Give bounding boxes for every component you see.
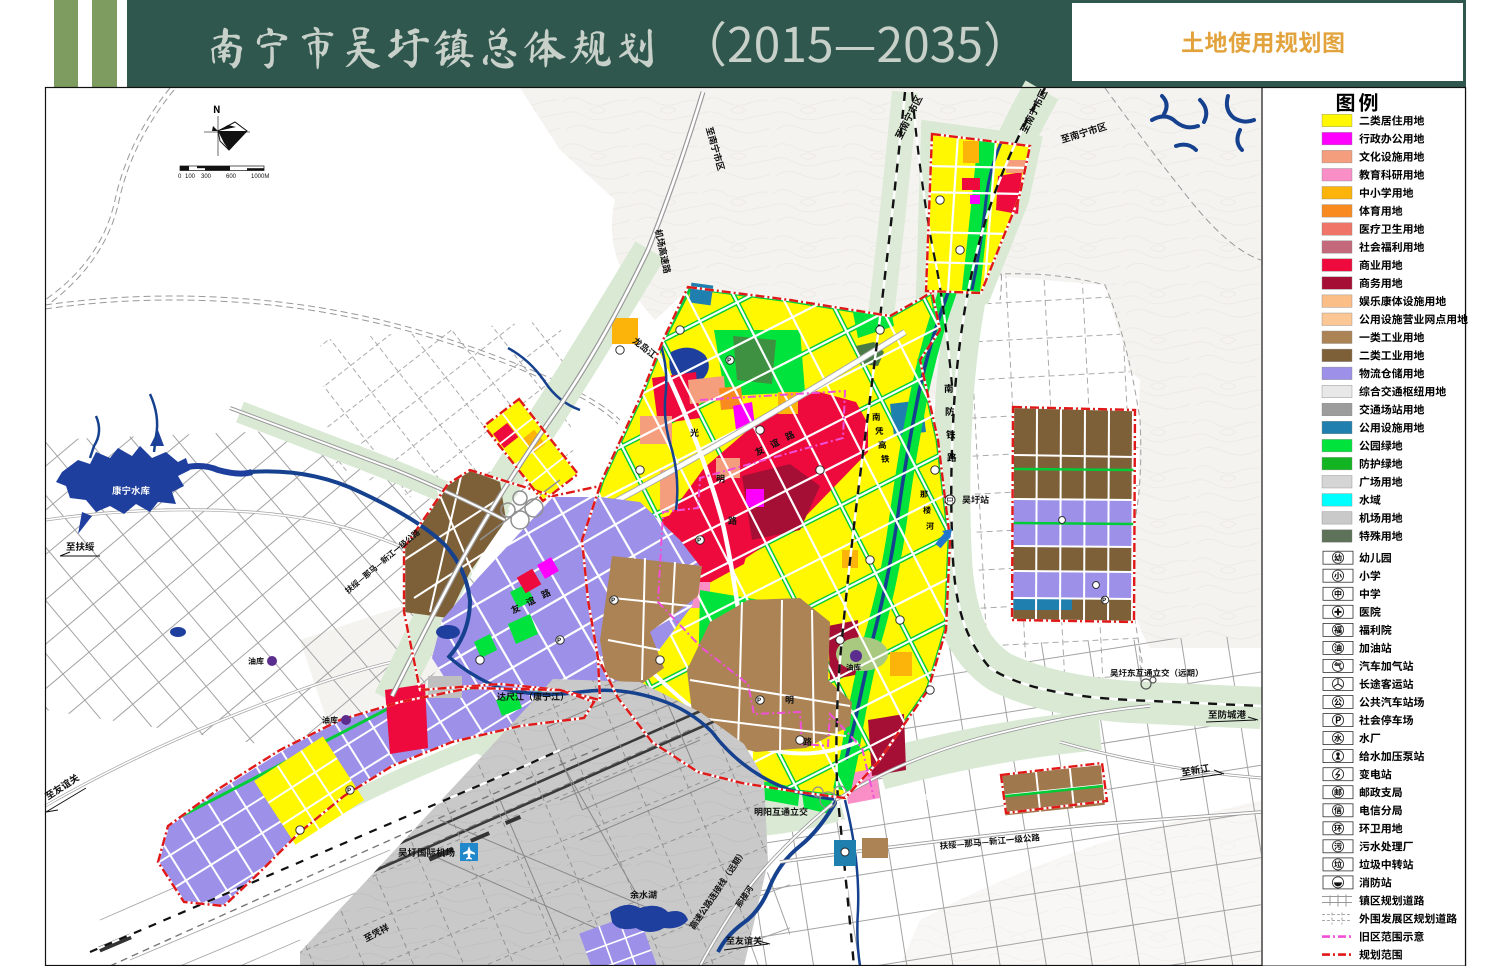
- svg-text:600: 600: [226, 174, 237, 180]
- svg-text:1000M: 1000M: [251, 174, 269, 180]
- svg-text:300: 300: [201, 174, 212, 180]
- svg-text:100: 100: [185, 174, 196, 180]
